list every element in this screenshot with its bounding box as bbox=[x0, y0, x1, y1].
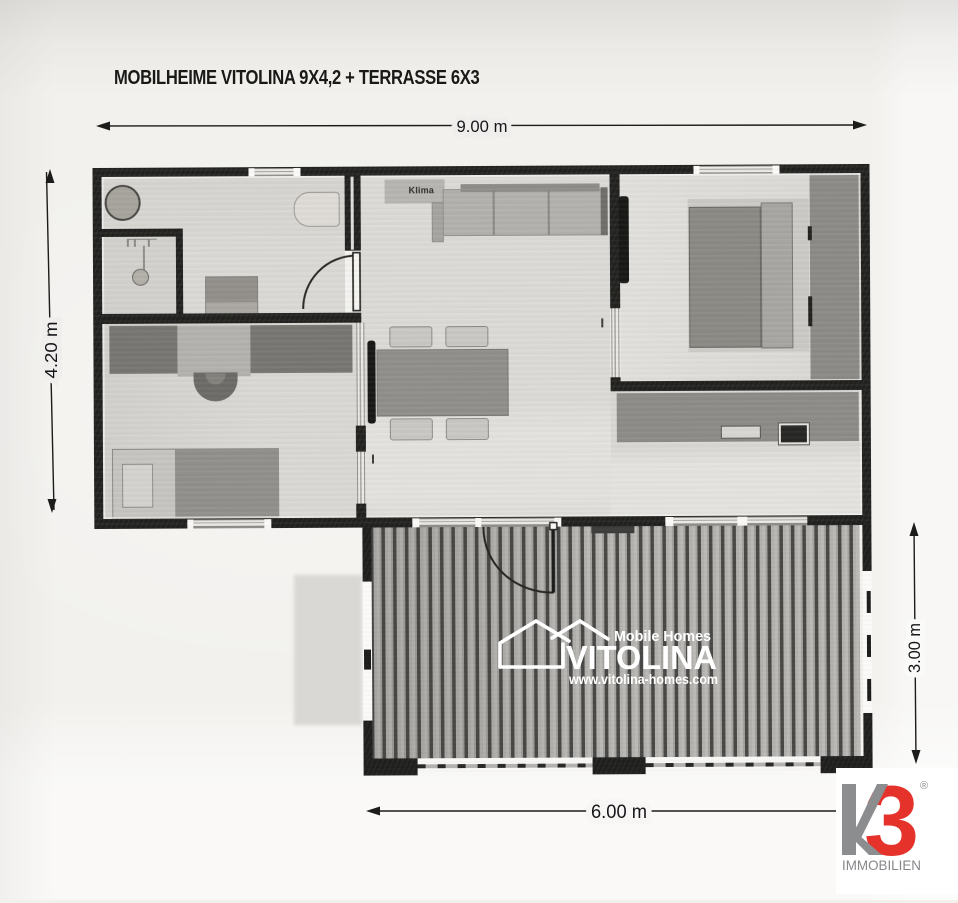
svg-text:®: ® bbox=[920, 780, 928, 792]
svg-text:3.00 m: 3.00 m bbox=[905, 623, 924, 673]
svg-text:IMMOBILIEN: IMMOBILIEN bbox=[842, 857, 921, 873]
svg-text:4.20 m: 4.20 m bbox=[41, 322, 61, 379]
svg-text:6.00 m: 6.00 m bbox=[591, 802, 647, 823]
svg-text:VITOLINA: VITOLINA bbox=[566, 639, 717, 676]
svg-text:www.vitolina-homes.com: www.vitolina-homes.com bbox=[568, 672, 718, 687]
svg-text:9.00 m: 9.00 m bbox=[457, 117, 508, 136]
